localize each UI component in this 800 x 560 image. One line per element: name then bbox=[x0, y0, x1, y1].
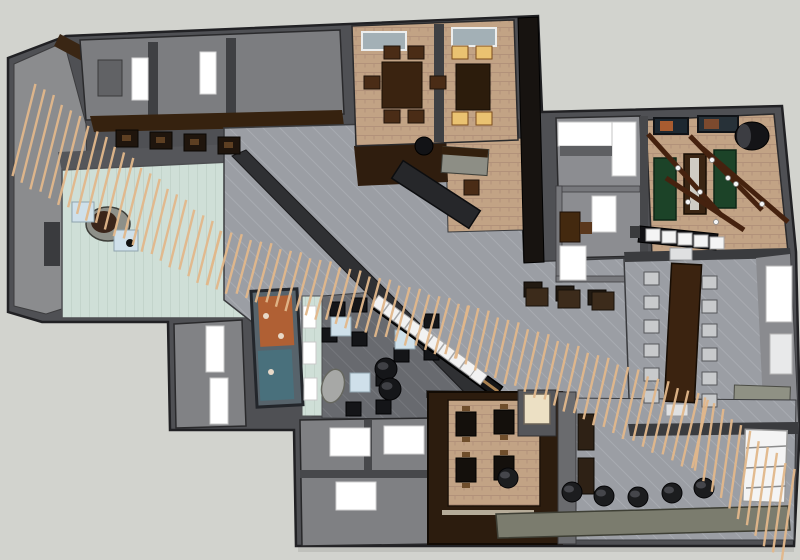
booth-tables-2 bbox=[456, 458, 476, 482]
private-dining-lit-chairs-2 bbox=[452, 112, 468, 125]
floor-poufs-cap-2 bbox=[596, 490, 606, 497]
private-dining-chairs-left-0 bbox=[384, 46, 400, 59]
communal-chairs-left-0 bbox=[644, 272, 659, 285]
gallery-benches-0 bbox=[303, 306, 316, 328]
backoffice-divider-walls-1 bbox=[226, 38, 236, 114]
lounge-ottomans-cap-1 bbox=[382, 382, 393, 390]
communal-chairs-left-1 bbox=[644, 296, 659, 309]
games-green-table-1 bbox=[654, 158, 676, 220]
private-dining-lit-chairs-1 bbox=[476, 46, 492, 59]
private-dining-lit-chairs-3 bbox=[476, 112, 492, 125]
communal-endchair-top bbox=[670, 248, 692, 260]
gallery-benches-2 bbox=[304, 378, 317, 400]
games-drum-cap bbox=[737, 124, 751, 148]
lounge-chairs-1 bbox=[352, 298, 367, 312]
floor-poufs-cap-1 bbox=[564, 486, 574, 493]
round-service-table bbox=[415, 137, 433, 155]
restroom-door-mats-1 bbox=[384, 426, 424, 454]
games-picture-art-1 bbox=[660, 121, 673, 131]
lounge-chairs-11 bbox=[376, 400, 391, 414]
lounge-chairs-3 bbox=[352, 332, 367, 346]
booth-table-seats-2 bbox=[500, 404, 508, 409]
private-dining-chairs-left-4 bbox=[364, 76, 380, 89]
art-highlights-0 bbox=[263, 313, 269, 319]
office-partition-top bbox=[556, 186, 640, 192]
private-dining-chairs-left-5 bbox=[430, 76, 446, 89]
booth-side-tables-0 bbox=[578, 414, 594, 450]
floor-poufs-0 bbox=[498, 468, 518, 488]
private-dining-table-right bbox=[456, 64, 490, 110]
backoffice-door-openings-0 bbox=[132, 58, 148, 100]
games-beam-lights-7 bbox=[760, 202, 765, 207]
games-beam-lights-4 bbox=[686, 200, 691, 205]
office-white-sofa bbox=[560, 246, 586, 280]
office-desk bbox=[560, 212, 580, 242]
lounge-ottomans-cap-0 bbox=[378, 362, 389, 370]
games-counter-endstool bbox=[630, 226, 640, 238]
communal-chairs-right-2 bbox=[702, 324, 717, 337]
leftwing-white-panels-0 bbox=[206, 326, 224, 372]
gallery-benches-1 bbox=[303, 342, 316, 364]
pantry-counter-edge bbox=[560, 146, 612, 156]
art-panel-bottom bbox=[258, 349, 295, 401]
private-dining-lit-chairs-0 bbox=[452, 46, 468, 59]
reception-desk-top bbox=[91, 211, 117, 233]
entry-left-door bbox=[44, 222, 60, 266]
hall-tables-north-tops-3 bbox=[224, 142, 233, 148]
booth-tables-1 bbox=[494, 410, 514, 434]
communal-chairs-left-5 bbox=[644, 390, 659, 403]
private-dining-chairs-left-3 bbox=[408, 110, 424, 123]
floor-poufs-cap-4 bbox=[664, 487, 674, 494]
games-counter-stools-3 bbox=[694, 235, 708, 247]
floor-poufs-1 bbox=[562, 482, 582, 502]
floor-poufs-cap-5 bbox=[696, 482, 706, 489]
communal-window-bottom bbox=[770, 334, 792, 374]
restroom-door-mats-0 bbox=[330, 428, 370, 456]
office-stool-row-1 bbox=[558, 290, 580, 308]
office-chair bbox=[580, 222, 592, 234]
booth-table-seats-0 bbox=[462, 406, 470, 411]
private-dining-chairs-left-1 bbox=[408, 46, 424, 59]
lounge-blue-tables-2 bbox=[350, 373, 370, 392]
backoffice-door-openings-1 bbox=[200, 52, 216, 94]
gallery-benches bbox=[303, 306, 317, 400]
restroom-door-mats-2 bbox=[336, 482, 376, 510]
host-chair bbox=[464, 180, 479, 195]
games-beam-lights-2 bbox=[710, 158, 715, 163]
leftwing-white-panels-1 bbox=[210, 378, 228, 424]
booth-table-seats-6 bbox=[500, 450, 508, 455]
booth-tables-0 bbox=[456, 412, 476, 436]
games-counter-stools-1 bbox=[662, 231, 676, 243]
games-counter-stools-2 bbox=[678, 233, 692, 245]
games-beam-lights-3 bbox=[734, 182, 739, 187]
communal-chairs-right-4 bbox=[702, 372, 717, 385]
floor-poufs-3 bbox=[628, 487, 648, 507]
communal-table bbox=[664, 263, 701, 402]
communal-chairs-right-1 bbox=[702, 300, 717, 313]
floorplan-render bbox=[0, 0, 800, 560]
floor-poufs-cap-0 bbox=[500, 472, 510, 479]
games-beam-lights-0 bbox=[676, 166, 681, 171]
lounge-chairs-6 bbox=[394, 348, 409, 362]
games-beam-lights-6 bbox=[726, 176, 731, 181]
hall-tables-north-tops-0 bbox=[122, 135, 131, 141]
booth-table-seats-4 bbox=[462, 452, 470, 457]
communal-chairs-left-2 bbox=[644, 320, 659, 333]
games-beam-lights-1 bbox=[698, 190, 703, 195]
games-picture-art-2 bbox=[704, 119, 719, 129]
games-beam-lights-5 bbox=[714, 220, 719, 225]
floor-poufs-cap-3 bbox=[630, 491, 640, 498]
office-stool-row-2 bbox=[592, 292, 614, 310]
booth-table-seats-5 bbox=[462, 483, 470, 488]
art-highlights-1 bbox=[278, 333, 284, 339]
skylights-1 bbox=[452, 28, 496, 46]
backoffice-equipment bbox=[98, 60, 122, 96]
booth-table-seats-3 bbox=[500, 435, 508, 440]
floor-poufs-4 bbox=[662, 483, 682, 503]
office-white-panel bbox=[592, 196, 616, 232]
private-dining-chairs-left-2 bbox=[384, 110, 400, 123]
games-counter-stools-4 bbox=[710, 237, 724, 249]
art-highlights-2 bbox=[268, 369, 274, 375]
private-dining-table-left bbox=[382, 62, 422, 108]
hall-tables-north-tops-1 bbox=[156, 137, 165, 143]
booth-lamp-cube bbox=[524, 394, 550, 424]
lounge-chairs-10 bbox=[346, 402, 361, 416]
communal-chairs-right-0 bbox=[702, 276, 717, 289]
floor-poufs-2 bbox=[594, 486, 614, 506]
communal-window-top bbox=[766, 266, 792, 322]
pantry-counter-short bbox=[612, 122, 636, 176]
floorplan-svg bbox=[0, 0, 800, 560]
booth-table-seats-1 bbox=[462, 437, 470, 442]
backoffice-divider-walls-0 bbox=[148, 42, 158, 118]
communal-chairs-left-3 bbox=[644, 344, 659, 357]
communal-chairs-right-3 bbox=[702, 348, 717, 361]
office-stool-row-0 bbox=[526, 288, 548, 306]
games-counter-stools-0 bbox=[646, 229, 660, 241]
hall-tables-north-tops-2 bbox=[190, 139, 199, 145]
